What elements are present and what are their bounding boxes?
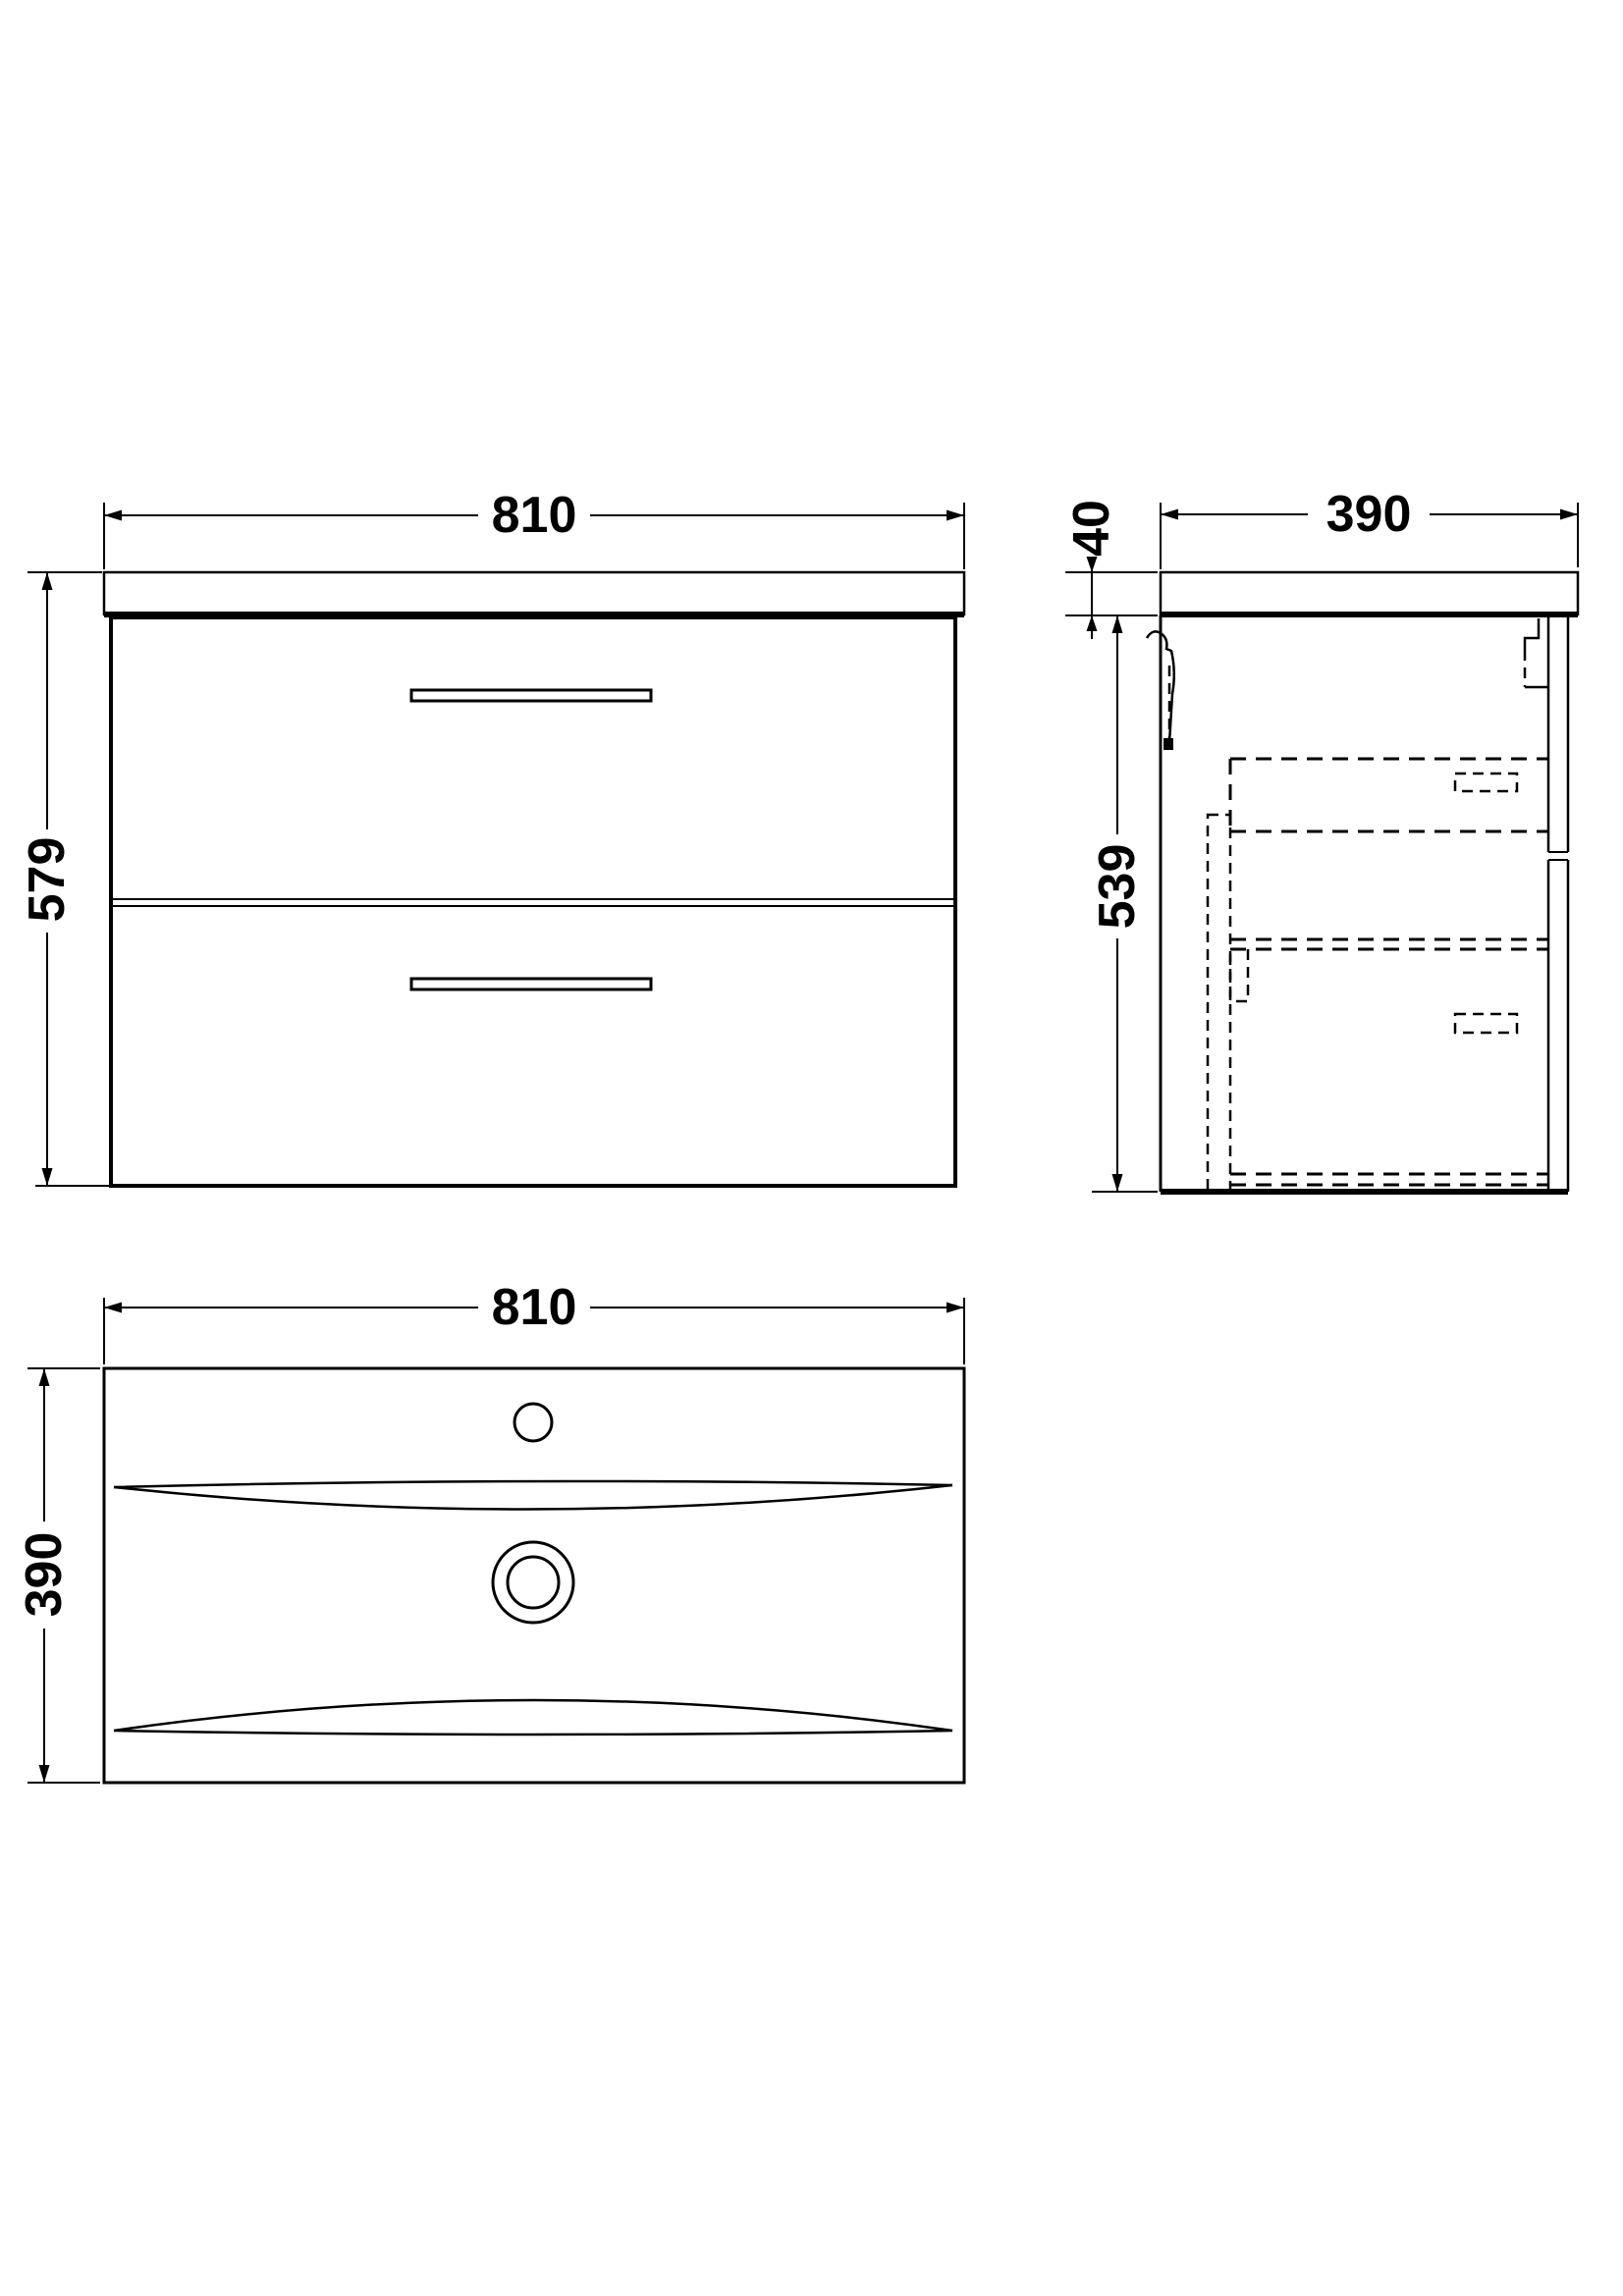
plan-width-label: 810 <box>492 1279 577 1336</box>
curve-arc <box>114 1485 952 1510</box>
bracket-foot <box>1163 738 1173 750</box>
side-worktop <box>1161 572 1578 614</box>
arrowhead <box>39 1765 50 1783</box>
arrowhead <box>947 1303 964 1313</box>
side-height-dimension: 539 <box>1089 615 1158 1192</box>
curve-chord <box>114 1731 952 1735</box>
upper-box-handle-hidden <box>1455 774 1517 791</box>
arrowhead <box>104 1303 122 1313</box>
arrowhead <box>1112 1174 1123 1192</box>
front-height-label: 579 <box>19 837 76 923</box>
plan-depth-dimension: 390 <box>16 1368 100 1783</box>
hidden-drawer-boxes <box>1208 759 1548 1192</box>
front-cabinet <box>111 617 955 1186</box>
arrowhead <box>1161 509 1178 520</box>
arrowhead <box>1112 615 1123 633</box>
side-drawer-fronts <box>1548 617 1568 1192</box>
curve-chord <box>114 1481 952 1487</box>
top-drawer-handle <box>411 690 651 701</box>
arrowhead <box>1087 557 1098 572</box>
waste-outer-ring <box>493 1542 573 1623</box>
plan-view: 810 390 <box>16 1279 964 1783</box>
arrowhead <box>42 1168 53 1186</box>
vanity-technical-drawing: 810 579 <box>0 0 1623 2296</box>
bowl-front-curve <box>114 1700 952 1735</box>
side-depth-label: 390 <box>1326 486 1412 543</box>
front-bracket <box>1525 618 1548 687</box>
plan-width-dimension: 810 <box>104 1279 964 1364</box>
drawing-sheet: 810 579 <box>0 0 1623 2296</box>
bowl-back-curve <box>114 1481 952 1510</box>
arrowhead <box>1560 509 1578 520</box>
plan-depth-label: 390 <box>16 1532 73 1618</box>
runner-bracket-hidden <box>1230 949 1248 1001</box>
front-worktop <box>104 572 964 614</box>
basin-outline <box>104 1368 964 1783</box>
bracket-step <box>1525 618 1539 650</box>
arrowhead <box>42 572 53 590</box>
waste-drain <box>493 1542 573 1623</box>
tap-hole <box>514 1404 552 1441</box>
arrowhead <box>39 1368 50 1386</box>
front-height-dimension: 579 <box>19 572 109 1186</box>
front-view: 810 579 <box>19 487 964 1186</box>
waste-inner-ring <box>508 1557 559 1608</box>
front-width-dimension: 810 <box>104 487 964 569</box>
bottom-drawer-handle <box>411 979 651 989</box>
side-height-label: 539 <box>1089 844 1146 930</box>
arrowhead <box>1087 615 1098 631</box>
worktop-thickness-label: 40 <box>1063 500 1120 557</box>
arrowhead <box>947 510 964 521</box>
side-view: 390 40 539 <box>1063 486 1578 1192</box>
hidden-rail <box>1208 815 1230 1192</box>
front-width-label: 810 <box>492 487 577 544</box>
arrowhead <box>104 510 122 521</box>
side-depth-dimension: 390 <box>1161 486 1578 569</box>
lower-box-handle-hidden <box>1455 1014 1517 1033</box>
curve-arc <box>114 1700 952 1731</box>
worktop-thickness-dimension: 40 <box>1063 500 1158 639</box>
